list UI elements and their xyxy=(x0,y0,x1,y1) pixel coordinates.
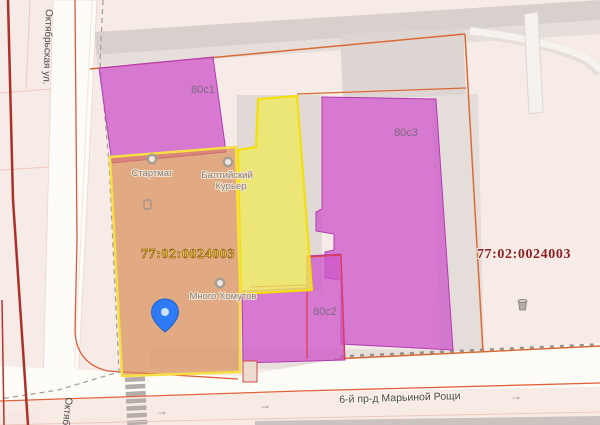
building-label-80s2: 80с2 xyxy=(313,306,337,318)
lane-arrow-icon: → xyxy=(259,398,271,412)
trash-bin-icon xyxy=(518,299,527,310)
small-annex-parcel[interactable] xyxy=(243,361,257,382)
cadastral-quarter-number-left: 77:02:0024003 xyxy=(141,247,235,262)
poi-label-startmag: Стартмаг xyxy=(131,168,173,179)
building-80s1-polygon[interactable] xyxy=(99,57,226,163)
building-label-80s3: 80с3 xyxy=(394,127,418,139)
building-label-80s1: 80с1 xyxy=(191,84,215,96)
poi-circle-icon[interactable] xyxy=(224,158,232,166)
lane-arrow-icon: → xyxy=(510,389,522,403)
lane-arrow-icon: → xyxy=(156,404,168,418)
cadastral-quarter-number-right: 77:02:0024003 xyxy=(477,247,571,262)
poi-label-baltiysky-line2: Курьер xyxy=(216,181,247,192)
poi-label-mnogo-khomutov: Много Хомутов xyxy=(189,291,256,302)
map-canvas[interactable]: 80с1 80с3 80с2 Стартмаг Балтийский Курье… xyxy=(0,0,600,425)
block-corner xyxy=(0,410,44,425)
poi-label-baltiysky-line1: Балтийский xyxy=(201,170,253,181)
poi-circle-icon[interactable] xyxy=(216,279,224,287)
poi-circle-icon[interactable] xyxy=(148,155,156,163)
